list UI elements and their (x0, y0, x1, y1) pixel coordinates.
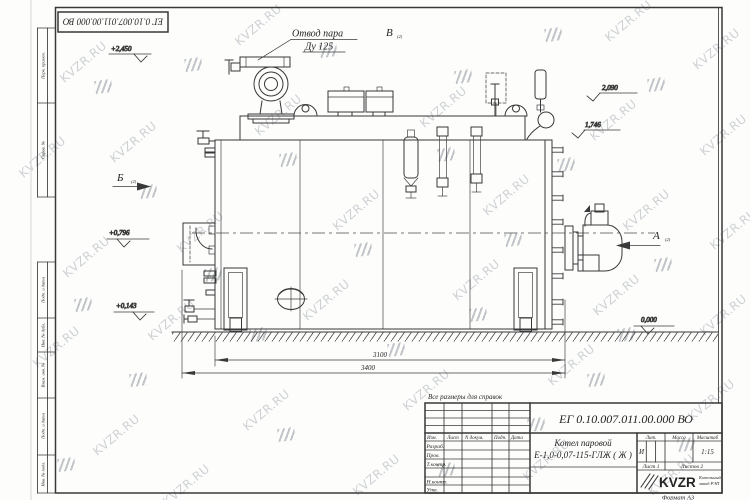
svg-text:А: А (652, 230, 660, 242)
svg-text:Б: Б (116, 172, 124, 184)
col-podp: Подп. (493, 436, 506, 441)
col-izm: Изм. (426, 436, 437, 441)
margin-label: Инв. № дубл. (41, 323, 46, 349)
top-rotated-stamp: ЕГ 0.10.007.011.00.000 ВО (58, 12, 168, 32)
svg-text:(2): (2) (665, 237, 671, 242)
margin-label: Подп. и дата (41, 412, 46, 439)
margin-label: Подп. и дата (41, 276, 46, 303)
logo-sub2: завод РЭП (698, 481, 720, 486)
product-name-line2: Е-1,0-0,07-115-ГЛЖ ( Ж ) (533, 450, 632, 460)
left-margin-cells: Перв. примен. Справ. № Подп. и дата Инв.… (38, 28, 56, 493)
margin-label: Инв. № подл. (41, 462, 46, 488)
elev-ground: 0,000 (641, 316, 657, 324)
product-name-line1: Котел паровой (553, 438, 612, 448)
title-doc-number: ЕГ 0.10.007.011.00.000 ВО (558, 412, 693, 426)
scale-header: Масштаб (696, 436, 719, 441)
lit-header: Лит. (645, 436, 657, 441)
rear-wall (545, 140, 563, 329)
sheet-number: Лист 1 (641, 464, 659, 470)
svg-text:(2): (2) (131, 179, 137, 184)
elev-top: +2,450 (111, 45, 132, 53)
elev-front-mid: +0,796 (109, 229, 130, 237)
dim-overall-length: 3400 (360, 364, 376, 372)
row-nkontr: Н.контр. (426, 480, 448, 486)
steam-outlet-callout: Отвод пара Ду 125 (258, 29, 357, 61)
logo-sub1: Котельный (698, 475, 721, 480)
svg-text:В: В (386, 27, 393, 39)
dimension-lines: 3100 3400 (182, 270, 565, 378)
title-block: Изм. Лист N докум. Подп. Дата Разраб. Пр… (425, 403, 722, 500)
boiler-ga-drawing: Перв. примен. Справ. № Подп. и дата Инв.… (0, 0, 750, 500)
drum-hatches (328, 87, 393, 116)
top-stamp-doc-number: ЕГ 0.10.007.011.00.000 ВО (62, 17, 164, 27)
sheets-total: Листов 2 (680, 464, 703, 470)
dim-body-length: 3100 (372, 351, 388, 359)
elev-front-low: +0,143 (116, 302, 137, 310)
drawing-sheet: KVZR.RUKVZR.RUKVZR.RUKVZR.RUKVZR.RUKVZR.… (0, 0, 750, 500)
drum-top-instruments (486, 70, 554, 139)
col-data: Дата (510, 436, 523, 441)
mass-header: Масса (671, 436, 686, 441)
feed-elbow-box (183, 223, 215, 265)
row-tkontr: Т.контр. (427, 462, 447, 468)
margin-label: Взам. инв. № (41, 363, 46, 388)
elev-right-upper: 2,090 (602, 84, 618, 92)
view-marker-v: В (2) (386, 27, 403, 39)
callout-line1: Отвод пара (292, 29, 343, 40)
callout-line2: Ду 125 (304, 42, 333, 53)
boiler-body (192, 116, 655, 329)
reference-note: Все размеры для справок (428, 393, 503, 401)
margin-label: Справ. № (41, 141, 46, 159)
col-list: Лист (446, 436, 459, 441)
front-fittings (183, 131, 216, 323)
view-marker-b: Б (2) (113, 172, 151, 191)
kvzr-logo: KVZR Котельный завод РЭП (641, 474, 721, 490)
support-legs (224, 268, 537, 332)
ground-line (172, 332, 718, 342)
manhole (275, 287, 307, 311)
lifting-lugs (294, 105, 527, 116)
margin-label: Перв. примен. (41, 52, 46, 80)
elev-right-lower: 1,746 (585, 121, 601, 129)
scale-value: 1:15 (701, 448, 714, 456)
steam-outlet-valve (225, 57, 294, 123)
col-ndoc: N докум. (464, 436, 484, 441)
elevation-marks: +2,450 2,090 1,746 +0,796 +0,143 0,000 (107, 45, 674, 334)
row-prov: Пров. (426, 453, 440, 459)
drain-valves (184, 300, 215, 323)
burner-assembly (565, 204, 622, 271)
gauge-siphon-loop (538, 112, 554, 128)
row-razrab: Разраб. (426, 443, 445, 450)
svg-text:(2): (2) (397, 34, 403, 39)
lit-value: И (638, 448, 645, 456)
row-utv: Утв. (427, 488, 438, 494)
logo-text: KVZR (659, 475, 696, 490)
burner-motor-fins (578, 255, 599, 271)
format-label: Формат А3 (662, 495, 695, 500)
